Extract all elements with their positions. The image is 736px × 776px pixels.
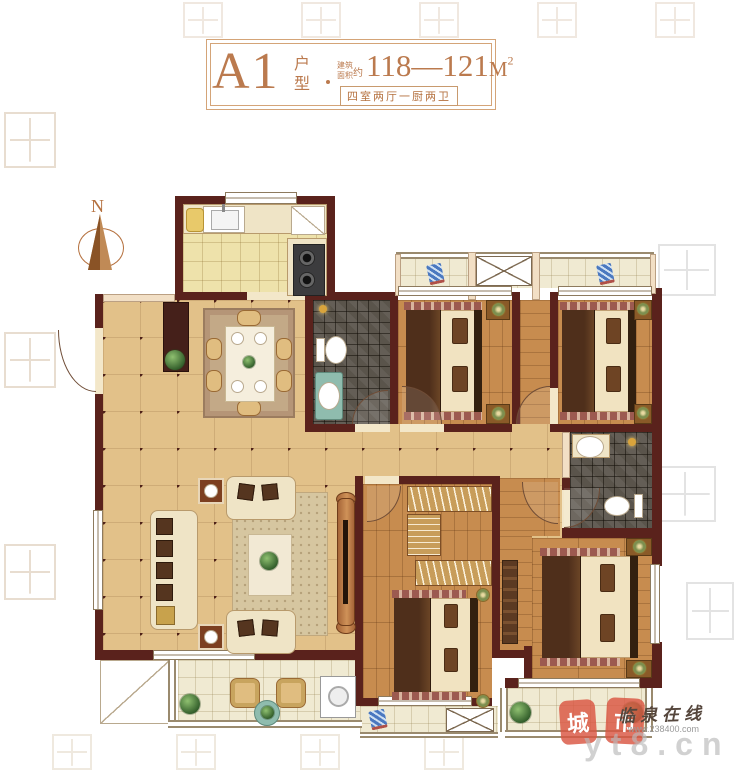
fridge <box>291 206 325 235</box>
wall <box>95 294 103 328</box>
wall <box>327 196 335 300</box>
dining-chair <box>206 338 222 360</box>
watermark-seal-ghost <box>4 544 56 600</box>
sofa-pillow <box>156 562 173 579</box>
toilet-bowl <box>325 336 347 364</box>
wall <box>355 476 363 706</box>
lamp-icon <box>204 484 218 498</box>
plate <box>231 380 244 393</box>
balcony-plant-icon <box>180 694 200 714</box>
layout-spec-box: 四室两厅一厨两卫 <box>340 86 458 106</box>
south-balcony-rail <box>168 660 176 722</box>
balcony-chair <box>230 678 260 708</box>
pillow <box>600 614 615 642</box>
entry-plant-icon <box>165 350 185 370</box>
watermark-seal-ghost <box>686 582 734 640</box>
sofa-pillow <box>261 483 279 501</box>
dining-chair <box>237 400 261 416</box>
light-wall <box>532 252 540 300</box>
kitchen-north-window <box>225 192 297 204</box>
wall <box>550 292 558 388</box>
lamp-icon <box>476 694 490 708</box>
bedroom2-north-window <box>558 286 652 296</box>
dining-chair <box>276 338 292 360</box>
wall <box>550 424 662 432</box>
dining-chair <box>237 310 261 326</box>
closet-shelves <box>407 514 441 556</box>
lamp-icon <box>476 588 490 602</box>
watermark-seal-ghost <box>655 2 695 38</box>
watermark-seal-ghost <box>300 734 340 770</box>
pillow <box>606 366 621 392</box>
entry-door-arc <box>58 330 96 392</box>
bed-runner <box>392 692 466 700</box>
tv-screen <box>343 520 348 604</box>
lamp-icon <box>491 406 506 421</box>
shaft-icon <box>446 708 494 732</box>
watermark-seal-ghost <box>176 734 216 770</box>
bed-duvet <box>394 598 431 692</box>
unit-type-char2: 型 <box>294 70 310 94</box>
unit-name: A1 <box>212 42 280 101</box>
plate <box>254 380 267 393</box>
bed-headboard <box>474 310 482 412</box>
lamp-icon <box>636 406 650 420</box>
bedroom2-door-opening <box>550 388 558 424</box>
stove-burner <box>299 272 315 288</box>
bed-duvet <box>542 556 581 658</box>
platform-rail <box>360 732 498 738</box>
bed-headboard <box>628 310 636 412</box>
pillow <box>444 648 458 672</box>
sofa-pillow-gold <box>156 606 175 625</box>
toilet-tank <box>316 338 325 362</box>
area-unit: M <box>489 57 508 81</box>
sofa-pillow <box>156 540 173 557</box>
area-number: 118—121 <box>366 48 489 83</box>
balcony-chair <box>276 678 306 708</box>
bed-headboard <box>630 556 638 658</box>
living-west-window <box>93 510 103 610</box>
corridor-runner <box>502 560 518 644</box>
wall <box>390 292 398 424</box>
master-east-window <box>650 564 660 644</box>
ac-platform <box>100 660 170 724</box>
wall <box>638 678 662 688</box>
watermark-seal-ghost <box>4 112 56 168</box>
closet-hanger-rod <box>407 486 492 512</box>
light-wall <box>562 432 570 478</box>
wall <box>652 432 662 532</box>
bed-runner <box>560 302 634 310</box>
dining-chair <box>276 370 292 392</box>
compass-arrow-shade <box>88 214 100 270</box>
washer-drum <box>328 686 349 707</box>
coffee-table-plant-icon <box>260 552 278 570</box>
sofa-pillow <box>237 483 255 501</box>
watermark-seal-ghost <box>183 2 223 38</box>
bed-runner <box>560 412 634 420</box>
wall <box>175 292 247 300</box>
bath2-light-icon <box>628 438 636 446</box>
bed-runner <box>540 658 620 666</box>
watermark-seal-ghost <box>52 734 92 770</box>
master-balcony-rail <box>500 688 508 732</box>
balcony-plant-icon <box>510 702 531 723</box>
lamp-icon <box>636 302 650 316</box>
sofa-pillow <box>156 584 173 601</box>
wall <box>652 538 662 566</box>
bed-duvet <box>562 310 595 412</box>
area-unit-exp: 2 <box>508 54 514 68</box>
dining-centerpiece <box>243 356 255 368</box>
lamp-icon <box>632 661 647 676</box>
master-south-window <box>518 678 640 688</box>
lamp-icon <box>632 539 647 554</box>
watermark-brand-script: 临泉在线 <box>618 698 736 727</box>
light-wall <box>103 294 175 302</box>
sink-basin <box>211 210 239 230</box>
watermark-seal-ghost <box>301 2 341 38</box>
pillow <box>606 318 621 344</box>
closet-hanger-rod <box>415 560 492 586</box>
wall <box>305 292 313 432</box>
shaft-icon <box>476 256 532 286</box>
plate <box>254 332 267 345</box>
pillow <box>600 564 615 592</box>
area-label-line2: 面积 <box>337 70 353 81</box>
watermark-seal-ghost <box>424 734 464 770</box>
floorplan-page: { "title_block": { "unit_name": "A1", "u… <box>0 0 736 776</box>
wall <box>355 698 380 706</box>
table-plant-icon <box>261 706 274 719</box>
wall <box>492 476 500 650</box>
bath1-light-icon <box>319 305 327 313</box>
bath1-basin <box>318 382 340 410</box>
entry-opening <box>95 328 103 394</box>
stove-burner <box>299 250 315 266</box>
wall <box>652 288 662 432</box>
bed-runner <box>392 590 466 598</box>
title-dot <box>326 80 330 84</box>
watermark-seal-ghost <box>654 466 716 522</box>
wall <box>444 424 512 432</box>
bed-headboard <box>470 598 478 692</box>
watermark-seal-ghost <box>658 244 716 296</box>
wall <box>562 528 662 538</box>
sofa-pillow <box>261 619 278 636</box>
lamp-icon <box>204 630 218 644</box>
sofa-pillow <box>156 518 173 535</box>
pillow <box>444 604 458 628</box>
wall <box>313 424 355 432</box>
toilet-tank <box>634 494 643 518</box>
kitchen-decor <box>186 208 204 232</box>
area-value: 118—121M2 <box>366 48 514 84</box>
dining-chair <box>206 370 222 392</box>
bedroom3-door-opening <box>365 476 399 484</box>
sink-faucet <box>222 204 225 212</box>
toilet-bowl <box>604 496 630 516</box>
bedroom1-door-opening <box>400 424 444 432</box>
plate <box>231 332 244 345</box>
watermark-large-url: yt8.cn <box>584 726 730 763</box>
watermark-seal-ghost <box>419 2 459 38</box>
bed-runner <box>404 302 482 310</box>
pillow <box>452 366 468 392</box>
wall <box>399 476 492 484</box>
watermark-seal-ghost <box>537 2 577 38</box>
bath2-basin <box>576 436 604 458</box>
wall <box>95 394 103 512</box>
wall <box>175 196 183 296</box>
sofa-pillow <box>237 619 255 637</box>
area-label-approx: 约 <box>353 64 363 79</box>
pillow <box>452 318 468 344</box>
bedroom1-north-window <box>398 286 512 296</box>
watermark-seal-ghost <box>4 332 56 388</box>
bed-runner <box>540 548 620 556</box>
wall <box>512 292 520 424</box>
wall <box>95 650 153 660</box>
bath1-door-opening <box>355 424 390 432</box>
wall <box>524 646 532 678</box>
lamp-icon <box>491 302 506 317</box>
